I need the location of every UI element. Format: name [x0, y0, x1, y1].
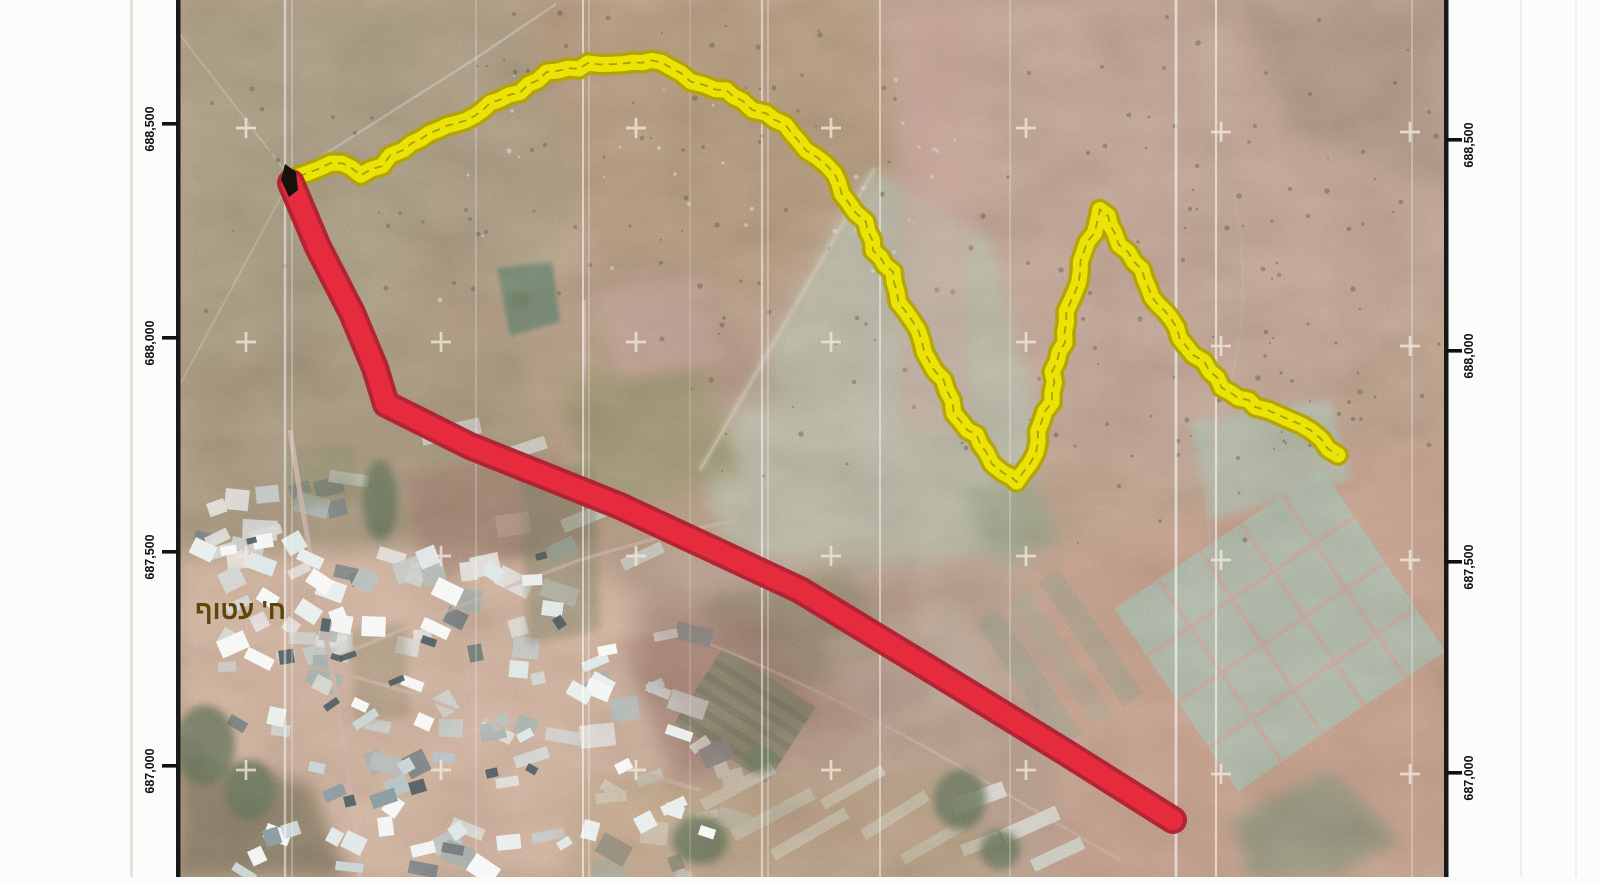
svg-text:ח' עטוף: ח' עטוף — [195, 595, 286, 625]
svg-text:687,500: 687,500 — [1462, 544, 1476, 589]
svg-text:687,500: 687,500 — [143, 534, 157, 579]
svg-text:688,000: 688,000 — [143, 320, 157, 365]
svg-text:688,000: 688,000 — [1462, 333, 1476, 378]
svg-text:688,500: 688,500 — [1462, 122, 1476, 167]
svg-text:687,000: 687,000 — [143, 748, 157, 793]
svg-text:687,000: 687,000 — [1462, 755, 1476, 800]
svg-text:688,500: 688,500 — [143, 106, 157, 151]
